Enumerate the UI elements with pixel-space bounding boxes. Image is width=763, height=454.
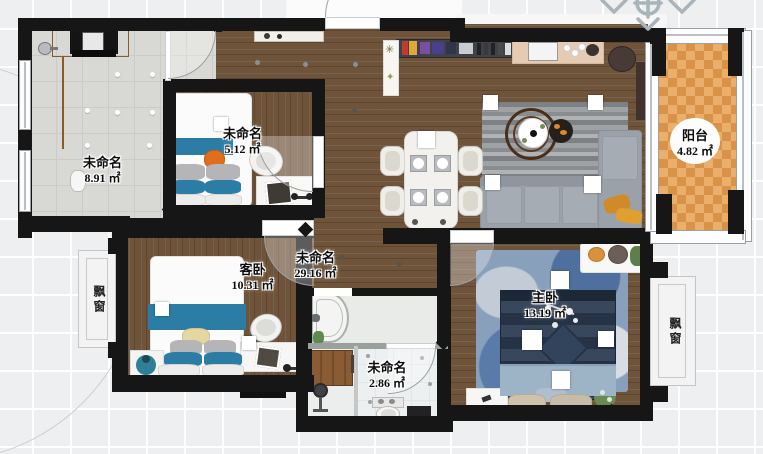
vase-row xyxy=(491,43,495,55)
faucet-icon xyxy=(311,314,320,322)
dumbbell-end xyxy=(291,193,298,200)
tile-dot xyxy=(85,143,90,148)
flush-button xyxy=(378,399,384,404)
room-area: 13.19 ㎡ xyxy=(505,306,585,321)
room-name: 阳台 xyxy=(664,128,726,144)
wall[interactable] xyxy=(214,18,222,32)
spotlight-dot xyxy=(397,262,402,267)
ceiling-light[interactable] xyxy=(155,302,169,316)
wall-cap xyxy=(648,262,668,278)
lamp-cap xyxy=(142,355,150,363)
wall[interactable] xyxy=(112,375,314,392)
room-name: 未命名 xyxy=(55,155,150,171)
bay-window-label: 飘窗 xyxy=(660,302,684,362)
flower-dot xyxy=(607,397,612,402)
vase-row xyxy=(477,43,481,55)
wall[interactable] xyxy=(222,18,325,31)
book-red xyxy=(402,41,408,55)
ceiling-light[interactable] xyxy=(242,336,256,350)
flush-button xyxy=(389,399,395,404)
sofa-cushion xyxy=(486,186,522,224)
stone-bowl xyxy=(608,245,628,264)
floor-lamp-head[interactable] xyxy=(313,383,328,398)
medallion-icon: ✳ xyxy=(385,44,397,56)
decor-dark xyxy=(446,42,456,54)
oven-door xyxy=(82,32,104,52)
room-area: 8.91 ㎡ xyxy=(55,171,150,186)
pillow-gray xyxy=(171,164,205,180)
ceiling-light[interactable] xyxy=(552,371,570,389)
chair-seat xyxy=(463,191,478,211)
pouf[interactable] xyxy=(608,46,636,72)
ceiling-light[interactable] xyxy=(551,271,569,289)
plate xyxy=(413,192,424,203)
chair-seat xyxy=(385,191,400,211)
spotlight-dot xyxy=(303,62,308,67)
fruit-bowl xyxy=(588,247,605,262)
ceiling-light[interactable] xyxy=(522,330,542,350)
table-leg xyxy=(440,219,446,225)
wall[interactable] xyxy=(437,244,451,420)
spotlight-dot xyxy=(353,62,358,67)
book-yellow xyxy=(409,41,417,55)
desk-art xyxy=(255,345,282,369)
spotlight-dot xyxy=(352,108,357,113)
door-leaf[interactable] xyxy=(450,230,494,243)
room-name: 未命名 xyxy=(352,360,422,376)
ceiling-light[interactable] xyxy=(483,95,498,110)
window-line xyxy=(24,152,26,210)
shelf-item xyxy=(264,33,270,39)
chair-seat xyxy=(256,319,276,336)
tile-dot xyxy=(150,110,155,115)
bathroom-door-gap xyxy=(314,288,352,296)
flower-dot xyxy=(600,390,605,395)
flower-dot xyxy=(552,322,558,328)
room-name: 未命名 xyxy=(195,126,290,142)
plate xyxy=(437,192,448,203)
room-name: 客卧 xyxy=(205,262,300,278)
wall[interactable] xyxy=(163,205,325,218)
wall-cap xyxy=(728,190,744,234)
wall[interactable] xyxy=(296,288,308,432)
dark-bowl xyxy=(586,44,599,56)
bay-window-label: 飘窗 xyxy=(86,272,108,328)
window-line xyxy=(24,62,26,128)
burner-strip xyxy=(72,50,116,57)
room-area: 2.86 ㎡ xyxy=(352,376,422,391)
window-line xyxy=(650,44,652,230)
laptop[interactable] xyxy=(528,42,558,61)
ceiling-light[interactable] xyxy=(598,331,614,347)
wall-cap xyxy=(108,238,128,254)
room-area: 4.82 ㎡ xyxy=(664,144,726,159)
tile-dot xyxy=(150,72,155,77)
wall[interactable] xyxy=(383,228,650,244)
ceiling-light[interactable] xyxy=(584,176,601,193)
storage-cabinet[interactable] xyxy=(309,350,353,386)
room-area: 10.31 ㎡ xyxy=(205,278,300,293)
room-label-guest[interactable]: 客卧 10.31 ㎡ xyxy=(205,262,300,293)
room-label-storage[interactable]: 未命名 8.91 ㎡ xyxy=(55,155,150,186)
decor-white xyxy=(459,43,473,54)
ceiling-light[interactable] xyxy=(588,95,603,110)
tile-dot xyxy=(368,400,372,404)
entry-door-leaf[interactable] xyxy=(325,17,380,29)
scale-bar xyxy=(240,392,286,398)
pillow-blue xyxy=(205,180,241,194)
wall[interactable] xyxy=(380,18,460,31)
spotlight-dot xyxy=(255,60,260,65)
door-leaf[interactable] xyxy=(313,136,324,188)
wall[interactable] xyxy=(18,18,222,31)
vase-row xyxy=(498,43,503,55)
table-leg xyxy=(412,219,418,225)
decor-navy xyxy=(432,42,444,54)
room-label-master[interactable]: 主卧 13.19 ㎡ xyxy=(505,290,585,321)
wall[interactable] xyxy=(163,79,325,92)
tile-dot xyxy=(366,354,370,358)
leaf-dot xyxy=(522,138,527,143)
room-label-toilet[interactable]: 未命名 2.86 ㎡ xyxy=(352,360,422,391)
wall[interactable] xyxy=(296,416,453,432)
decor-purple xyxy=(420,42,430,54)
wall-cap xyxy=(656,194,672,234)
tray-food xyxy=(560,130,567,135)
dumbbell-end xyxy=(283,364,291,372)
wall[interactable] xyxy=(448,405,653,421)
chair-seat xyxy=(385,151,400,171)
shelf-item xyxy=(277,34,282,39)
tile-dot xyxy=(115,110,120,115)
table-item xyxy=(571,49,579,57)
counter-edge-line xyxy=(62,57,64,149)
room-label-balcony[interactable]: 阳台 4.82 ㎡ xyxy=(664,128,726,159)
sink-handle xyxy=(50,47,58,50)
tile-dot xyxy=(428,382,432,386)
medallion-icon: ✦ xyxy=(386,72,398,84)
pillow-gray xyxy=(206,164,240,180)
plate xyxy=(437,158,448,169)
vase-row xyxy=(484,43,488,55)
leaf-dot xyxy=(540,124,545,129)
chaise-cushion xyxy=(602,136,638,180)
chair-seat xyxy=(463,151,478,171)
table-center-dot xyxy=(530,130,537,137)
tile-dot xyxy=(147,143,152,148)
ceiling-light[interactable] xyxy=(418,131,435,148)
tray-food xyxy=(554,124,560,129)
vase-row xyxy=(505,43,511,55)
floor-lamp-base xyxy=(313,409,328,412)
compass-icon[interactable] xyxy=(600,0,696,34)
wall-cap xyxy=(650,28,666,76)
room-name: 主卧 xyxy=(505,290,585,306)
tile-dot xyxy=(115,72,120,77)
plate xyxy=(413,158,424,169)
room-label-bedroom2[interactable]: 未命名 5.12 ㎡ xyxy=(195,126,290,157)
wall-cap xyxy=(108,342,128,358)
table-item xyxy=(563,44,571,52)
sofa-cushion xyxy=(524,186,560,224)
table-item xyxy=(578,43,586,51)
ceiling-light[interactable] xyxy=(485,175,500,190)
room-area: 5.12 ㎡ xyxy=(195,142,290,157)
tile-dot xyxy=(85,108,90,113)
wall-cap xyxy=(648,386,668,402)
floorplan-canvas[interactable]: ✳ ✦ xyxy=(0,0,763,454)
wall[interactable] xyxy=(163,92,176,218)
